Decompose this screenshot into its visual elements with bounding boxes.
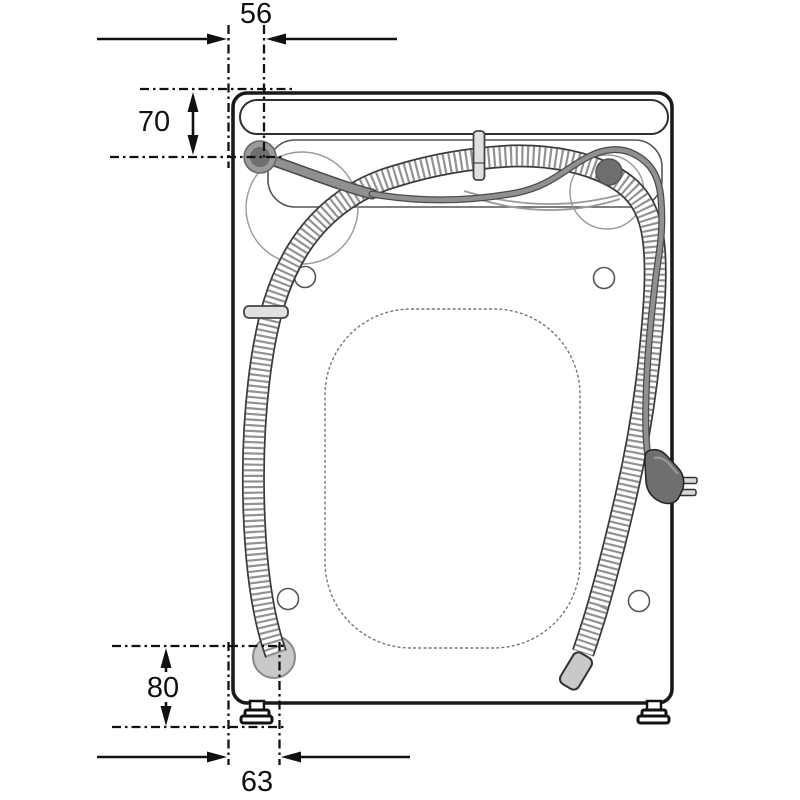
hose-clip-left (244, 306, 288, 318)
right-port (596, 159, 622, 185)
technical-diagram-page: 56 70 80 63 (0, 0, 800, 800)
hose-clip-top (474, 131, 485, 180)
machine-group (233, 93, 697, 723)
dimension-top-offset: 56 (97, 0, 397, 45)
top-handle-recess (240, 100, 668, 134)
dimension-upper-height: 70 (138, 92, 199, 155)
dimension-bottom-offset: 63 (97, 752, 410, 799)
dimension-label-56: 56 (240, 0, 272, 30)
screw-hole-bottom-left (278, 589, 299, 610)
screw-hole-top-right (594, 268, 615, 289)
screw-hole-bottom-right (629, 591, 650, 612)
dimension-label-63: 63 (241, 766, 273, 798)
dimension-label-70: 70 (138, 106, 170, 138)
dimension-lower-height: 80 (147, 648, 179, 726)
washing-machine-rear-diagram: 56 70 80 63 (0, 0, 800, 800)
dimension-label-80: 80 (147, 672, 179, 704)
